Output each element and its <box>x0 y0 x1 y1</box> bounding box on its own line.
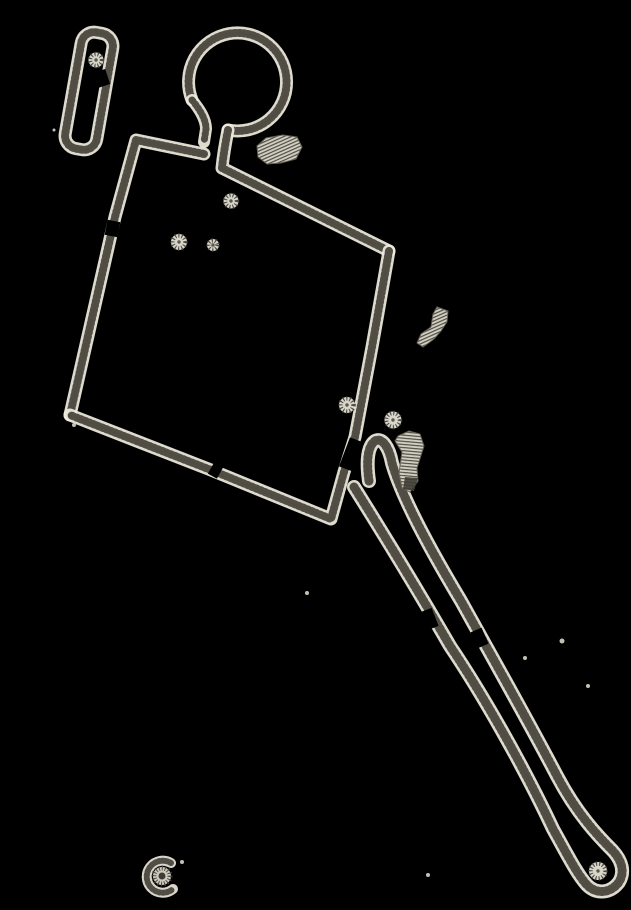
left-edge-and-top-left-edge-ticks <box>70 140 204 415</box>
left-edge-and-top-left-edge-core <box>70 140 204 415</box>
starburst-dot-upper <box>224 194 239 209</box>
rosette-core <box>159 873 166 880</box>
handle-outline <box>354 440 622 891</box>
handle-right-line-gap <box>476 630 483 646</box>
starburst-dot-right-outer-center <box>391 418 394 421</box>
speck-0 <box>305 591 309 595</box>
handle-outline-halo <box>354 440 622 891</box>
right-edge-and-bottom-edge <box>70 251 389 519</box>
figure-stage <box>0 0 631 910</box>
starburst-dot-right-inner <box>339 397 355 413</box>
crescent-dark-tip <box>403 477 418 491</box>
speck-6 <box>72 423 76 427</box>
speck-7 <box>53 129 56 132</box>
speck-1 <box>560 639 565 644</box>
starburst-dot-left-small <box>207 239 219 251</box>
hatched-patch-comma <box>417 307 448 347</box>
hatched-patch-neck <box>257 135 302 164</box>
left-edge-and-top-left-edge-halo <box>70 140 204 415</box>
right-edge-gap <box>346 440 357 469</box>
starburst-dot-handle-end <box>589 862 607 880</box>
pill-outline <box>63 30 115 152</box>
starburst-dot-upper-center <box>229 199 232 202</box>
neck-right-and-top-edge <box>222 130 389 251</box>
speck-4 <box>426 873 430 877</box>
neck-right-and-top-edge-halo <box>222 130 389 251</box>
starburst-dot-handle-end-center <box>596 869 599 872</box>
speck-2 <box>523 656 527 660</box>
speck-5 <box>180 860 184 864</box>
starburst-dot-left <box>171 234 187 250</box>
starburst-dot-right-outer <box>385 412 402 429</box>
handle-left-line-gap <box>426 610 433 628</box>
right-edge-and-bottom-edge-ticks <box>70 251 389 519</box>
left-edge-gap <box>111 221 114 236</box>
neck-left-line <box>192 100 206 142</box>
bottom-edge-gap <box>211 468 220 473</box>
speck-3 <box>586 684 590 688</box>
starburst-dot-left-center <box>177 240 180 243</box>
pill-right-edge-gap <box>99 71 104 86</box>
starburst-dot-pill <box>89 53 104 68</box>
starburst-dot-right-inner-center <box>345 403 348 406</box>
sketch-canvas <box>0 0 631 910</box>
left-edge-and-top-left-edge <box>70 140 204 415</box>
starburst-dot-left-small-center <box>211 243 214 246</box>
rosette <box>147 861 173 893</box>
starburst-dot-pill-center <box>94 58 97 61</box>
